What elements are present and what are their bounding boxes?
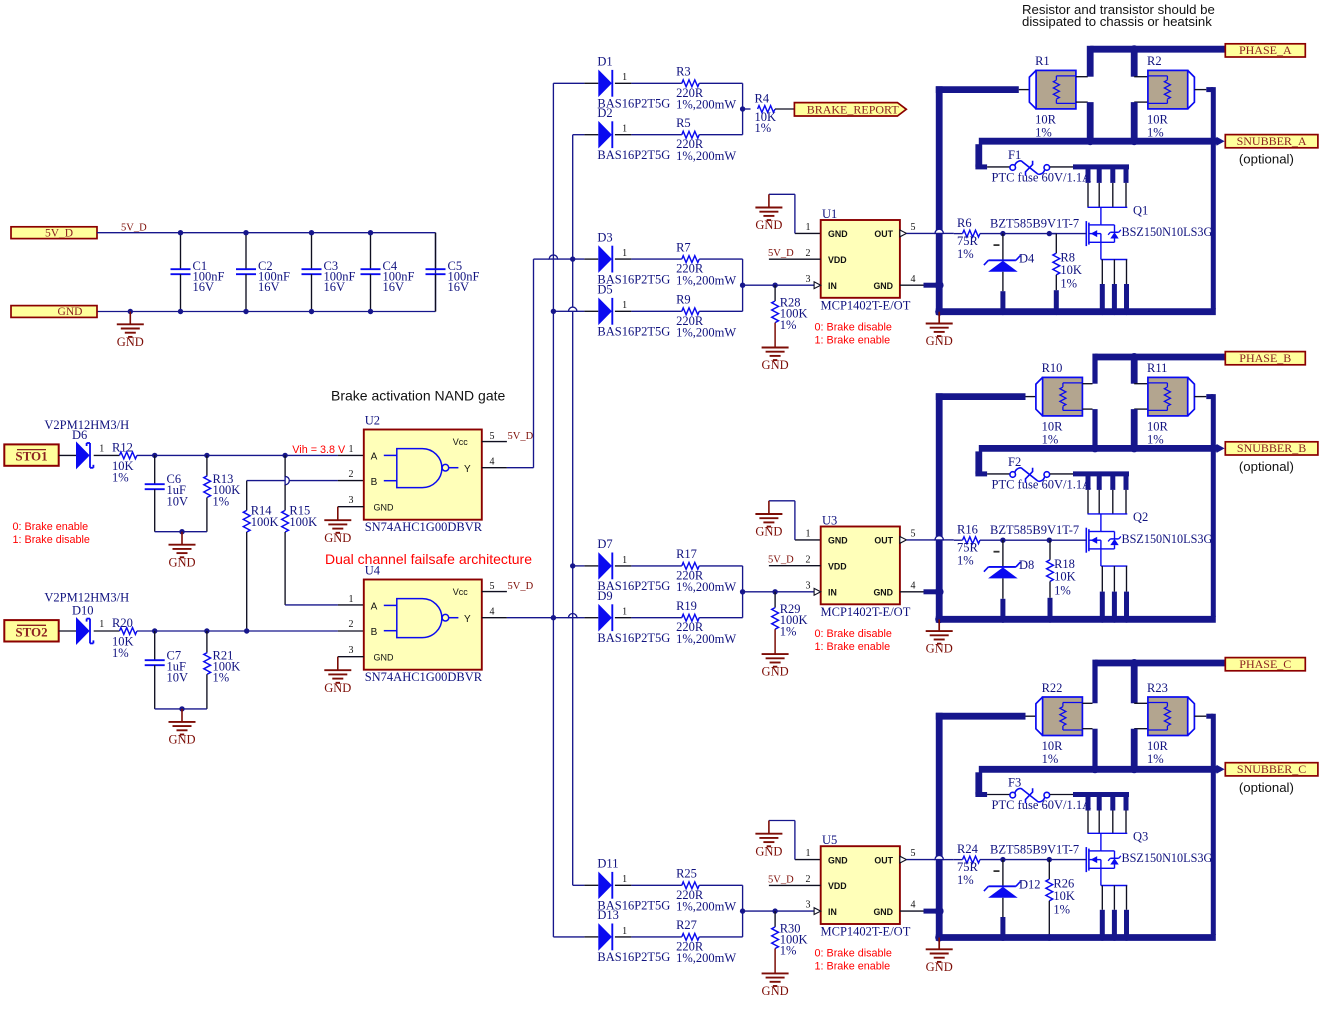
svg-text:2: 2 — [349, 619, 354, 630]
svg-text:16V: 16V — [448, 280, 470, 294]
svg-text:GND: GND — [755, 844, 782, 858]
svg-text:SNUBBER_A: SNUBBER_A — [1237, 134, 1307, 148]
svg-text:1: 1 — [806, 529, 811, 540]
svg-text:1: 1 — [622, 72, 627, 83]
svg-text:1%: 1% — [1053, 903, 1070, 917]
svg-text:1%: 1% — [1147, 432, 1164, 446]
svg-text:U5: U5 — [822, 833, 837, 847]
svg-text:GND: GND — [926, 642, 953, 656]
svg-text:1: 1 — [622, 926, 627, 937]
svg-text:BAS16P2T5G: BAS16P2T5G — [597, 631, 670, 645]
svg-text:D4: D4 — [1019, 252, 1035, 266]
svg-text:GND: GND — [873, 907, 893, 917]
svg-text:1%: 1% — [1042, 752, 1059, 766]
svg-text:1%: 1% — [213, 671, 230, 685]
svg-text:1%: 1% — [1042, 432, 1059, 446]
svg-text:U2: U2 — [365, 414, 380, 428]
svg-text:16V: 16V — [383, 280, 405, 294]
svg-text:D7: D7 — [597, 537, 612, 551]
svg-text:10K: 10K — [1054, 569, 1076, 583]
svg-text:3: 3 — [806, 274, 811, 285]
svg-text:3: 3 — [349, 645, 354, 656]
svg-text:GND: GND — [926, 960, 953, 974]
svg-text:1%,200mW: 1%,200mW — [676, 632, 736, 646]
svg-text:2: 2 — [806, 874, 811, 885]
svg-text:1%: 1% — [1060, 277, 1077, 291]
svg-text:dissipated to chassis or heats: dissipated to chassis or heatsink — [1022, 14, 1212, 29]
svg-text:1%: 1% — [1035, 125, 1052, 139]
svg-text:3: 3 — [806, 900, 811, 911]
svg-text:4: 4 — [911, 580, 916, 591]
svg-text:U1: U1 — [822, 207, 837, 221]
svg-text:5V_D: 5V_D — [508, 431, 534, 442]
svg-text:1%: 1% — [780, 318, 797, 332]
svg-text:4: 4 — [911, 900, 916, 911]
svg-text:F1: F1 — [1008, 148, 1021, 162]
svg-text:Y: Y — [464, 464, 471, 475]
svg-text:GND: GND — [762, 358, 789, 372]
svg-text:1%: 1% — [957, 873, 974, 887]
svg-text:10R: 10R — [1147, 419, 1169, 433]
svg-text:V2PM12HM3/H: V2PM12HM3/H — [44, 590, 129, 604]
svg-text:R5: R5 — [676, 116, 691, 130]
svg-text:16V: 16V — [258, 280, 280, 294]
svg-text:10K: 10K — [1053, 889, 1075, 903]
svg-text:Q3: Q3 — [1133, 829, 1148, 843]
svg-text:SN74AHC1G00DBVR: SN74AHC1G00DBVR — [365, 670, 483, 684]
svg-text:1: Brake enable: 1: Brake enable — [815, 960, 891, 972]
svg-text:D11: D11 — [597, 857, 618, 871]
svg-text:1%,200mW: 1%,200mW — [676, 951, 736, 965]
svg-text:R7: R7 — [676, 240, 691, 254]
svg-text:1%: 1% — [755, 121, 772, 135]
svg-text:16V: 16V — [324, 280, 346, 294]
svg-text:R22: R22 — [1042, 681, 1063, 695]
svg-text:PHASE_A: PHASE_A — [1239, 43, 1292, 57]
svg-text:1%: 1% — [213, 494, 230, 508]
svg-text:1: Brake enable: 1: Brake enable — [815, 334, 891, 346]
svg-text:1%: 1% — [780, 624, 797, 638]
svg-text:VDD: VDD — [828, 881, 847, 891]
svg-text:D3: D3 — [597, 230, 612, 244]
svg-text:1: 1 — [622, 874, 627, 885]
svg-text:10K: 10K — [1060, 263, 1082, 277]
svg-text:GND: GND — [828, 536, 848, 546]
svg-text:R4: R4 — [755, 92, 770, 106]
svg-text:PTC fuse 60V/1.1A: PTC fuse 60V/1.1A — [992, 798, 1092, 812]
svg-text:1%: 1% — [1147, 125, 1164, 139]
svg-text:R17: R17 — [676, 547, 697, 561]
svg-text:IN: IN — [828, 907, 837, 917]
svg-text:1: Brake disable: 1: Brake disable — [13, 534, 90, 546]
svg-text:75R: 75R — [957, 541, 979, 555]
svg-text:BRAKE_REPORT: BRAKE_REPORT — [807, 102, 900, 116]
svg-text:R11: R11 — [1147, 361, 1167, 375]
svg-text:IN: IN — [828, 588, 837, 598]
svg-text:1%,200mW: 1%,200mW — [676, 326, 736, 340]
svg-text:R25: R25 — [676, 867, 697, 881]
svg-text:1%: 1% — [112, 646, 129, 660]
svg-text:1%: 1% — [957, 247, 974, 261]
svg-text:10V: 10V — [167, 494, 189, 508]
svg-text:3: 3 — [806, 580, 811, 591]
svg-text:1%: 1% — [1054, 583, 1071, 597]
svg-text:1%,200mW: 1%,200mW — [676, 273, 736, 287]
svg-text:1: 1 — [349, 444, 354, 455]
svg-text:0: Brake enable: 0: Brake enable — [13, 521, 89, 533]
svg-text:2: 2 — [349, 469, 354, 480]
svg-text:BZT585B9V1T-7: BZT585B9V1T-7 — [990, 217, 1079, 231]
svg-text:B: B — [371, 477, 378, 488]
svg-text:1: 1 — [622, 300, 627, 311]
svg-text:R16: R16 — [957, 523, 978, 537]
svg-text:10R: 10R — [1147, 739, 1169, 753]
svg-text:BZT585B9V1T-7: BZT585B9V1T-7 — [990, 523, 1079, 537]
svg-text:2: 2 — [806, 248, 811, 259]
svg-text:F2: F2 — [1008, 455, 1021, 469]
svg-text:MCP1402T-E/OT: MCP1402T-E/OT — [821, 605, 911, 619]
svg-text:1: 1 — [622, 248, 627, 259]
svg-text:D6: D6 — [72, 428, 87, 442]
svg-text:STO1: STO1 — [15, 449, 47, 464]
svg-text:PTC fuse 60V/1.1A: PTC fuse 60V/1.1A — [992, 170, 1092, 184]
svg-text:(optional): (optional) — [1239, 459, 1294, 474]
svg-text:GND: GND — [168, 733, 195, 747]
svg-text:GND: GND — [828, 855, 848, 865]
svg-text:R9: R9 — [676, 293, 691, 307]
svg-text:1%: 1% — [957, 554, 974, 568]
svg-text:Vcc: Vcc — [453, 587, 469, 597]
svg-text:1%,200mW: 1%,200mW — [676, 580, 736, 594]
svg-text:5: 5 — [911, 222, 916, 233]
svg-text:0: Brake disable: 0: Brake disable — [815, 628, 892, 640]
svg-text:Vih = 3.8 V: Vih = 3.8 V — [292, 444, 346, 456]
svg-text:1%: 1% — [780, 944, 797, 958]
svg-text:1: Brake enable: 1: Brake enable — [815, 641, 891, 653]
svg-text:5V_D: 5V_D — [508, 581, 534, 592]
svg-text:Brake activation NAND gate: Brake activation NAND gate — [331, 388, 506, 404]
svg-text:IN: IN — [828, 281, 837, 291]
svg-text:4: 4 — [490, 456, 495, 467]
svg-text:BZT585B9V1T-7: BZT585B9V1T-7 — [990, 843, 1079, 857]
svg-text:D13: D13 — [597, 908, 619, 922]
svg-text:GND: GND — [324, 681, 351, 695]
svg-text:D8: D8 — [1019, 558, 1034, 572]
svg-text:GND: GND — [755, 525, 782, 539]
svg-text:D9: D9 — [597, 589, 612, 603]
svg-text:1: 1 — [806, 848, 811, 859]
svg-text:GND: GND — [374, 652, 395, 662]
svg-text:GND: GND — [117, 335, 144, 349]
svg-text:1%,200mW: 1%,200mW — [676, 149, 736, 163]
svg-text:BSZ150N10LS3G: BSZ150N10LS3G — [1122, 225, 1213, 239]
svg-text:1: 1 — [99, 444, 104, 455]
svg-text:1: 1 — [622, 124, 627, 135]
svg-text:GND: GND — [58, 306, 83, 318]
svg-text:GND: GND — [873, 588, 893, 598]
svg-text:1: 1 — [349, 594, 354, 605]
svg-text:10R: 10R — [1035, 112, 1057, 126]
svg-text:U3: U3 — [822, 514, 837, 528]
svg-text:(optional): (optional) — [1239, 152, 1294, 167]
svg-text:R3: R3 — [676, 65, 691, 79]
svg-text:PHASE_B: PHASE_B — [1239, 351, 1291, 365]
svg-text:0: Brake disable: 0: Brake disable — [815, 947, 892, 959]
svg-text:R12: R12 — [112, 440, 133, 454]
svg-text:OUT: OUT — [874, 229, 893, 239]
svg-text:4: 4 — [490, 606, 495, 617]
svg-text:5V_D: 5V_D — [121, 222, 147, 233]
svg-text:R27: R27 — [676, 918, 697, 932]
svg-text:100K: 100K — [251, 515, 279, 529]
svg-text:1: 1 — [622, 607, 627, 618]
svg-text:D10: D10 — [72, 604, 94, 618]
svg-text:GND: GND — [926, 334, 953, 348]
svg-text:5: 5 — [490, 581, 495, 592]
svg-text:F3: F3 — [1008, 776, 1021, 790]
svg-text:D2: D2 — [597, 106, 612, 120]
svg-text:U4: U4 — [365, 564, 381, 578]
svg-text:Q2: Q2 — [1133, 510, 1148, 524]
svg-text:5V_D: 5V_D — [768, 248, 794, 259]
svg-text:OUT: OUT — [874, 855, 893, 865]
svg-text:GND: GND — [324, 531, 351, 545]
svg-text:BAS16P2T5G: BAS16P2T5G — [597, 148, 670, 162]
svg-text:5V_D: 5V_D — [45, 227, 73, 239]
svg-text:D5: D5 — [597, 283, 612, 297]
svg-text:10V: 10V — [167, 671, 189, 685]
svg-text:GND: GND — [873, 281, 893, 291]
svg-text:Y: Y — [464, 614, 471, 625]
svg-text:(optional): (optional) — [1239, 780, 1294, 795]
svg-text:1: 1 — [622, 555, 627, 566]
svg-text:D12: D12 — [1019, 878, 1041, 892]
svg-text:75R: 75R — [957, 860, 979, 874]
svg-text:3: 3 — [349, 495, 354, 506]
svg-text:Dual channel failsafe architec: Dual channel failsafe architecture — [325, 551, 532, 567]
svg-text:PTC fuse 60V/1.1A: PTC fuse 60V/1.1A — [992, 477, 1092, 491]
svg-text:GND: GND — [374, 502, 395, 512]
svg-text:D1: D1 — [597, 55, 612, 69]
svg-text:5V_D: 5V_D — [768, 874, 794, 885]
svg-text:MCP1402T-E/OT: MCP1402T-E/OT — [821, 298, 911, 312]
svg-text:R20: R20 — [112, 616, 133, 630]
svg-text:GND: GND — [828, 229, 848, 239]
svg-text:SNUBBER_C: SNUBBER_C — [1237, 762, 1306, 776]
svg-text:1%,200mW: 1%,200mW — [676, 900, 736, 914]
svg-text:BAS16P2T5G: BAS16P2T5G — [597, 325, 670, 339]
svg-text:5V_D: 5V_D — [768, 555, 794, 566]
svg-text:100K: 100K — [289, 515, 317, 529]
svg-text:2: 2 — [806, 554, 811, 565]
svg-text:PHASE_C: PHASE_C — [1239, 657, 1291, 671]
svg-text:OUT: OUT — [874, 536, 893, 546]
svg-text:1: 1 — [806, 222, 811, 233]
svg-text:STO2: STO2 — [15, 624, 47, 639]
svg-text:R1: R1 — [1035, 54, 1050, 68]
svg-text:1%: 1% — [112, 470, 129, 484]
svg-text:SNUBBER_B: SNUBBER_B — [1237, 441, 1306, 455]
svg-text:A: A — [371, 602, 378, 613]
svg-text:B: B — [371, 627, 378, 638]
svg-text:BSZ150N10LS3G: BSZ150N10LS3G — [1122, 851, 1213, 865]
svg-text:4: 4 — [911, 274, 916, 285]
svg-text:10R: 10R — [1042, 419, 1064, 433]
svg-text:1%: 1% — [1147, 752, 1164, 766]
svg-text:5: 5 — [911, 529, 916, 540]
svg-text:0: Brake disable: 0: Brake disable — [815, 321, 892, 333]
svg-text:R24: R24 — [957, 842, 979, 856]
svg-text:GND: GND — [762, 665, 789, 679]
svg-text:10R: 10R — [1147, 112, 1169, 126]
svg-text:R2: R2 — [1147, 54, 1162, 68]
svg-text:A: A — [371, 452, 378, 463]
svg-text:VDD: VDD — [828, 562, 847, 572]
svg-text:Q1: Q1 — [1133, 203, 1148, 217]
svg-text:GND: GND — [762, 984, 789, 998]
svg-text:5: 5 — [490, 431, 495, 442]
svg-text:R10: R10 — [1042, 361, 1063, 375]
svg-text:BAS16P2T5G: BAS16P2T5G — [597, 950, 670, 964]
svg-text:VDD: VDD — [828, 255, 847, 265]
svg-text:SN74AHC1G00DBVR: SN74AHC1G00DBVR — [365, 520, 483, 534]
svg-text:75R: 75R — [957, 234, 979, 248]
svg-text:GND: GND — [755, 218, 782, 232]
svg-text:GND: GND — [168, 555, 195, 569]
svg-text:1: 1 — [99, 619, 104, 630]
svg-text:Vcc: Vcc — [453, 437, 469, 447]
svg-text:16V: 16V — [193, 280, 215, 294]
svg-text:R23: R23 — [1147, 681, 1168, 695]
svg-text:BSZ150N10LS3G: BSZ150N10LS3G — [1122, 532, 1213, 546]
svg-text:5: 5 — [911, 848, 916, 859]
svg-text:R19: R19 — [676, 599, 697, 613]
svg-text:1%,200mW: 1%,200mW — [676, 98, 736, 112]
svg-text:10R: 10R — [1042, 739, 1064, 753]
svg-text:R6: R6 — [957, 216, 972, 230]
svg-text:MCP1402T-E/OT: MCP1402T-E/OT — [821, 925, 911, 939]
